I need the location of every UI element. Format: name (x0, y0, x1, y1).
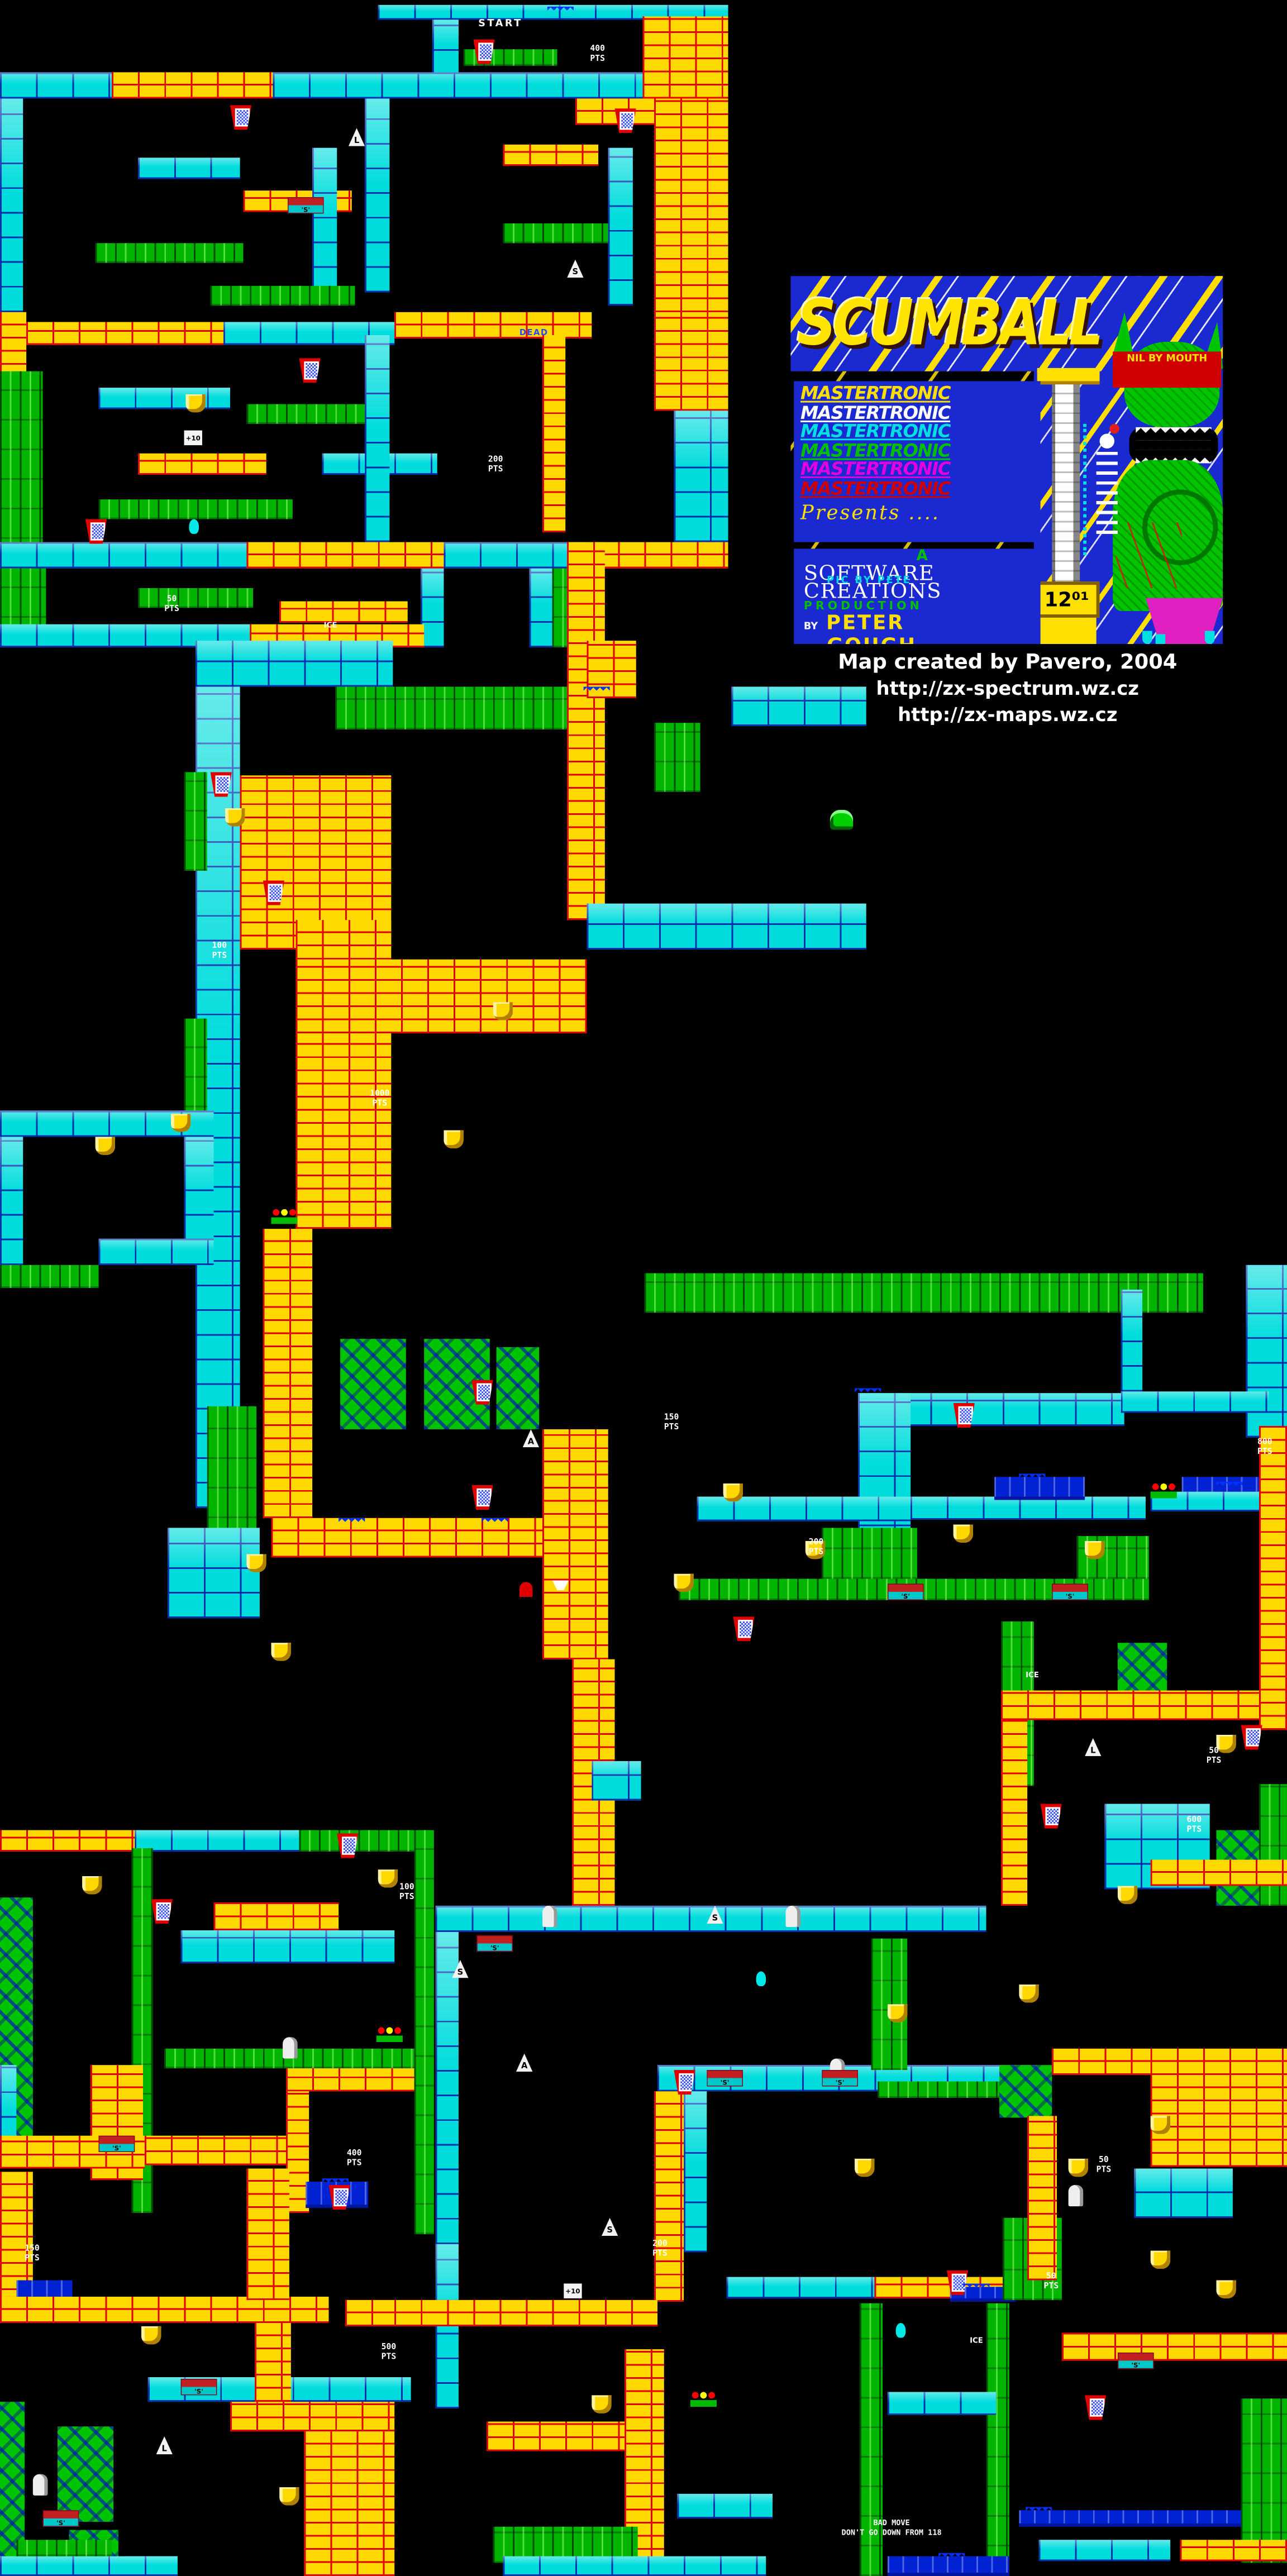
map-block-cyan-platform (421, 569, 444, 647)
map-block-cyan-platform (677, 2494, 773, 2518)
map-block-cyan-platform (0, 2556, 178, 2576)
map-block-brick-wall (246, 542, 444, 569)
sprite-cup-icon (1019, 1985, 1038, 2002)
sprite-flower-icon (1151, 1483, 1177, 1498)
sprite-cup-icon (674, 1574, 693, 1592)
map-block-brick-wall (1001, 1720, 1027, 1906)
map-block-cyan-platform (858, 1393, 911, 1551)
monster-claw-icon (1205, 631, 1215, 644)
sprite-wdecor-icon (322, 2178, 349, 2188)
sprite-kconv-icon: 'S' (99, 2136, 135, 2152)
map-block-cyan-platform (436, 1932, 459, 2244)
map-block-green-foliage (99, 499, 293, 519)
sprite-flame-icon (756, 1972, 766, 1986)
sprite-flame-icon (896, 2323, 906, 2338)
sprite-pyr-icon: S (567, 260, 583, 278)
pillar-shaft (1052, 384, 1080, 581)
map-block-brick-wall (214, 1902, 339, 1930)
map-block-cyan-platform (365, 98, 389, 292)
sprite-kconv-icon: 'S' (1052, 1583, 1088, 1600)
map-block-cyan-platform (99, 1239, 214, 1265)
game-map: LSSALSALS400 PTS100 PTS1000 PTS150 PTS20… (0, 0, 1287, 2576)
sprite-pyr-icon: L (349, 128, 365, 146)
sprite-wdecor-icon (963, 2283, 989, 2293)
sprite-kconv-icon: 'S' (822, 2070, 858, 2086)
sprite-cup-icon (1151, 2251, 1170, 2269)
sprite-pts-icon: 50 PTS (1043, 2274, 1059, 2292)
sprite-pts-icon: 1000 PTS (370, 1091, 389, 1109)
map-block-brick-wall (296, 920, 392, 960)
map-block-brick-wall (654, 312, 728, 411)
sprite-cup-icon (1085, 1541, 1104, 1559)
sprite-kconv-icon: 'S' (181, 2379, 217, 2395)
sprite-flower-icon (690, 2392, 717, 2407)
sprite-cup-icon (171, 1114, 190, 1132)
sprite-kconv-icon: 'S' (1118, 2353, 1154, 2369)
map-block-brick-wall (296, 960, 587, 1033)
map-block-brick-wall (542, 335, 565, 532)
sprite-pts-icon: 150 PTS (25, 2246, 40, 2264)
map-block-brick-wall (1151, 2049, 1287, 2167)
sprite-wdecor-icon (547, 7, 574, 17)
sprite-cup-icon (271, 1643, 291, 1661)
sprite-statue-icon (283, 2037, 297, 2058)
skeleton-ribs-icon (1097, 449, 1118, 534)
map-block-green-foliage (184, 772, 207, 870)
sprite-cup-icon (1151, 2116, 1170, 2134)
sprite-dead-icon: DEAD (519, 328, 549, 338)
sprite-hopper-icon (337, 1833, 358, 1858)
sprite-cup-icon (493, 1002, 513, 1020)
sprite-pts-icon: 600 PTS (1186, 1817, 1202, 1835)
sprite-hopper-icon (1041, 1804, 1062, 1829)
hopper-screen-icon (958, 1406, 973, 1424)
start-label: START (478, 18, 523, 30)
hopper-screen-icon (476, 1384, 491, 1401)
map-block-brick-wall (255, 2323, 291, 2402)
map-block-totem-pillar (340, 1339, 406, 1429)
sprite-wdecor-icon (584, 686, 610, 697)
monster-mouth-icon (1129, 427, 1218, 464)
map-block-cyan-platform (0, 542, 246, 569)
map-block-cyan-platform (99, 388, 230, 409)
sprite-cup-icon (279, 2487, 299, 2505)
map-block-cyan-platform (0, 98, 23, 312)
sprite-pts-icon: 50 PTS (164, 597, 179, 614)
sprite-cup-icon (592, 2395, 611, 2413)
credits-url-zx-maps: http://zx-maps.wz.cz (766, 702, 1249, 728)
warning-label: BAD MOVE DON'T GO DOWN FROM 118 (842, 2520, 942, 2539)
author-row: BY PETER (804, 613, 1041, 636)
sprite-pyr-icon: S (602, 2218, 618, 2236)
map-block-brick-wall (345, 2300, 394, 2326)
hopper-screen-icon (215, 775, 230, 793)
sprite-wdecor-icon (482, 1518, 508, 1528)
title-screen-inset: 12⁰¹ NIL BY MOUTH SCUMBALL MASTERTRONICM… (790, 276, 1223, 644)
hopper-screen-icon (679, 2073, 693, 2091)
map-block-cyan-platform (684, 2091, 707, 2252)
map-block-brick-wall (112, 72, 273, 98)
sprite-cup-icon (1069, 2159, 1088, 2177)
sprite-hopper-icon (230, 105, 251, 130)
author-name-line1: PETER (826, 611, 904, 634)
sprite-cup-icon (954, 1525, 973, 1543)
map-block-cyan-platform (273, 72, 417, 98)
hopper-screen-icon (90, 522, 105, 540)
map-block-green-foliage (822, 1528, 917, 1578)
sprite-hopper-icon (733, 1616, 754, 1641)
map-block-green-foliage (96, 243, 244, 263)
map-block-totem-pillar (497, 1347, 540, 1429)
sprite-statue-icon (33, 2474, 47, 2496)
map-block-brick-wall (394, 2300, 657, 2326)
credits-url-zx-spectrum: http://zx-spectrum.wz.cz (766, 675, 1249, 702)
map-block-brick-wall (1001, 1691, 1259, 1720)
map-block-brick-wall (1180, 2540, 1287, 2561)
map-block-water (1019, 2510, 1259, 2526)
sprite-cup-icon (444, 1130, 463, 1148)
map-block-cyan-platform (592, 1761, 641, 1801)
sprite-cup-icon (186, 394, 206, 412)
map-block-brick-wall (542, 1429, 608, 1659)
sprite-kconv-icon: 'S' (476, 1935, 513, 1952)
sprite-wdecor-icon (339, 1518, 365, 1528)
sprite-wdecor-icon (1026, 2507, 1052, 2517)
monster-claw-icon (1156, 634, 1166, 644)
map-block-brick-wall (643, 16, 728, 98)
map-block-cyan-platform (196, 641, 393, 686)
map-block-cyan-platform (181, 1930, 395, 1963)
sprite-pts-icon: 200 PTS (809, 1539, 824, 1557)
publisher-line: MASTERTRONIC (800, 479, 1041, 498)
map-block-green-foliage (878, 2082, 1006, 2098)
sprite-cup-icon (225, 808, 245, 826)
sprite-statue-icon (1069, 2185, 1083, 2206)
map-block-brick-wall (304, 2431, 394, 2576)
hopper-screen-icon (478, 42, 493, 60)
hopper-screen-icon (1090, 2398, 1104, 2416)
sprite-kconv-icon: 'S' (43, 2510, 79, 2526)
map-block-green-foliage (0, 1265, 99, 1288)
map-block-brick-wall (1151, 1860, 1287, 1886)
hopper-screen-icon (738, 1620, 752, 1638)
pillar-base: 12⁰¹ (1034, 581, 1100, 618)
map-block-cyan-platform (1121, 1391, 1269, 1413)
map-block-green-foliage (654, 723, 700, 792)
map-block-brick-wall (26, 322, 223, 345)
production-panel: A SOFTWARE CREATIONS PRODUCTION BY PETER… (794, 548, 1040, 644)
map-block-brick-wall (1062, 2333, 1287, 2361)
map-block-green-foliage (335, 686, 585, 729)
sprite-batt-icon: +10 (184, 431, 202, 445)
author-row: GOUGH (804, 636, 1041, 644)
map-block-brick-wall (1052, 2049, 1153, 2075)
sprite-flame-icon (189, 519, 199, 533)
by-label: BY (804, 621, 818, 633)
map-block-cyan-platform (365, 335, 389, 542)
sprite-pts-icon: 200 PTS (488, 457, 503, 475)
sprite-pyr-icon: L (156, 2436, 173, 2454)
publisher-lines: MASTERTRONICMASTERTRONICMASTERTRONICMAST… (800, 384, 1041, 498)
skeleton-skull-icon (1100, 434, 1114, 449)
map-block-green-foliage (1241, 2398, 1287, 2563)
sprite-wdecor-icon (855, 1388, 881, 1398)
sprite-pyr-icon: A (523, 1429, 539, 1447)
map-block-green-foliage (246, 404, 375, 424)
monster-teeth-icon (1136, 427, 1211, 441)
game-logo: SCUMBALL (797, 286, 1218, 360)
map-block-brick-wall (230, 2402, 394, 2431)
map-block-green-foliage (16, 2540, 112, 2556)
map-block-totem-pillar (999, 2065, 1052, 2117)
map-block-cyan-platform (587, 904, 866, 950)
sprite-pts-icon: 400 PTS (590, 46, 605, 64)
chain-icon (1083, 424, 1086, 555)
publisher-line: MASTERTRONIC (800, 441, 1041, 460)
sprite-cup-icon (723, 1483, 743, 1501)
map-block-cyan-platform (0, 1137, 23, 1265)
map-block-brick-wall (279, 602, 408, 623)
map-block-brick-wall (567, 542, 605, 920)
map-block-brick-wall (263, 1229, 312, 1518)
map-credits: Map created by Pavero, 2004 http://zx-sp… (766, 647, 1249, 728)
map-block-green-foliage (644, 1273, 1203, 1313)
sprite-pts-icon: 200 PTS (652, 2241, 668, 2259)
hopper-screen-icon (156, 1902, 171, 1920)
hopper-screen-icon (333, 2188, 348, 2206)
sprite-cup-icon (1118, 1886, 1137, 1904)
map-block-cyan-platform (503, 2556, 766, 2576)
map-block-green-foliage (0, 371, 43, 569)
sprite-kconv-icon: 'S' (288, 197, 324, 213)
publisher-line: MASTERTRONIC (800, 403, 1041, 422)
map-block-brick-wall (654, 98, 728, 312)
sprite-hopper-icon (85, 519, 107, 543)
sprite-hopper-icon (1241, 1725, 1262, 1749)
presents-text: Presents .... (800, 501, 1041, 524)
map-block-brick-wall (1027, 2116, 1057, 2280)
map-block-cyan-platform (674, 411, 728, 542)
map-block-green-foliage (503, 223, 614, 243)
sprite-hopper-icon (471, 1485, 493, 1510)
map-block-cyan-platform (0, 72, 112, 98)
map-block-green-foliage (986, 2303, 1009, 2576)
monster-claw-icon (1142, 631, 1152, 644)
map-block-brick-wall (0, 1830, 135, 1852)
sprite-pts-icon: 50 PTS (1097, 2157, 1112, 2175)
map-block-brick-wall (592, 542, 728, 569)
map-block-brick-wall (1259, 1426, 1287, 1730)
monster-veins-icon (1116, 522, 1182, 588)
sprite-pts-icon: 800 PTS (1257, 1439, 1272, 1457)
pillar-capital (1037, 368, 1100, 384)
map-block-cyan-platform (417, 72, 642, 98)
sprite-pts-icon: 50 PTS (1207, 1748, 1222, 1766)
sprite-pts-icon: 100 PTS (212, 943, 227, 961)
hopper-screen-icon (1045, 1807, 1060, 1825)
map-block-cyan-platform (138, 158, 240, 179)
map-block-cyan-platform (1121, 1290, 1142, 1391)
credits-author-line: Map created by Pavero, 2004 (766, 647, 1249, 675)
map-block-brick-wall (654, 2091, 684, 2301)
sprite-ice-icon: ICE (324, 624, 337, 633)
map-block-cyan-platform (727, 2277, 875, 2298)
map-block-brick-wall (0, 2297, 329, 2323)
sprite-hopper-icon (299, 358, 321, 383)
sprite-wdecor-icon (938, 2553, 965, 2563)
sprite-frog-icon (830, 810, 853, 829)
sprite-cup-icon (96, 1137, 115, 1155)
map-block-green-foliage (211, 286, 355, 306)
hopper-screen-icon (1246, 1728, 1260, 1746)
sprite-flower-icon (271, 1209, 298, 1224)
skeleton-red-blob-icon (1109, 424, 1119, 434)
map-block-brick-wall (246, 2169, 289, 2300)
sprite-cup-icon (1216, 2281, 1236, 2298)
sprite-wdecor-icon (1019, 1473, 1045, 1483)
hopper-screen-icon (476, 1489, 491, 1506)
map-block-cyan-platform (911, 1497, 1146, 1520)
sprite-cup-icon (82, 1876, 102, 1894)
sprite-cup-icon (888, 2004, 907, 2022)
sprite-cup-icon (855, 2159, 874, 2177)
hopper-screen-icon (235, 108, 250, 126)
hopper-screen-icon (268, 884, 283, 901)
sprite-batt-icon: +10 (564, 2283, 581, 2298)
sprite-cup-icon (246, 1554, 266, 1572)
sprite-pts-icon: 150 PTS (664, 1414, 679, 1432)
hopper-screen-icon (304, 361, 318, 379)
publisher-line: MASTERTRONIC (800, 422, 1041, 441)
map-block-cyan-platform (312, 148, 337, 293)
pic-credit: PIC BY PETE (827, 575, 912, 586)
map-block-brick-wall (394, 312, 592, 338)
map-block-green-foliage (414, 1830, 434, 2235)
sprite-wdecor-icon (1216, 1482, 1242, 1492)
map-block-brick-wall (138, 454, 266, 475)
map-block-cyan-platform (529, 569, 552, 647)
hopper-screen-icon (619, 112, 634, 130)
sprite-pts-icon: 400 PTS (347, 2150, 362, 2168)
sprite-ice-icon: ICE (970, 2339, 983, 2348)
map-block-cyan-platform (888, 2392, 996, 2415)
sprite-flower-icon (376, 2028, 403, 2042)
sprite-pts-icon: 500 PTS (382, 2344, 397, 2362)
map-block-cyan-platform (168, 1528, 260, 1618)
publisher-line: MASTERTRONIC (800, 384, 1041, 403)
map-block-brick-wall (296, 1033, 392, 1229)
sprite-cup-icon (378, 1869, 398, 1887)
sprite-hopper-icon (614, 108, 636, 133)
publisher-panel: MASTERTRONICMASTERTRONICMASTERTRONICMAST… (794, 381, 1040, 542)
hopper-screen-icon (342, 1836, 356, 1854)
sprite-pyr-icon: A (516, 2054, 532, 2072)
map-block-brick-wall (145, 2136, 286, 2165)
sprite-kconv-icon: 'S' (707, 2070, 743, 2086)
sprite-statue-icon (542, 1906, 557, 1927)
map-block-green-foliage (1259, 1784, 1287, 1906)
map-block-green-foliage (138, 588, 253, 608)
sprite-hopper-icon (151, 1899, 173, 1924)
pillar-foot (1037, 618, 1097, 644)
map-block-cyan-platform (135, 1830, 299, 1852)
map-block-cyan-platform (432, 20, 459, 75)
sprite-cup-icon (141, 2326, 161, 2344)
map-block-cyan-platform (1134, 2169, 1233, 2218)
sprite-hopper-icon (1085, 2395, 1106, 2420)
sprite-bell-icon (519, 1582, 533, 1596)
map-block-brick-wall (286, 2068, 431, 2091)
map-block-totem-pillar (58, 2426, 113, 2522)
sprite-kconv-icon: 'S' (888, 1583, 924, 1600)
map-block-cyan-platform (608, 148, 633, 306)
sprite-pts-icon: 100 PTS (399, 1885, 414, 1902)
author-name-line2: GOUGH (827, 634, 917, 644)
map-block-brick-wall (503, 145, 598, 166)
map-block-cyan-platform (1039, 2540, 1170, 2561)
scumball-map-page: { "page": { "title": "Scumball — ZX Spec… (0, 0, 1287, 2576)
sprite-pyr-icon: L (1085, 1738, 1101, 1756)
map-block-brick-wall (487, 2421, 625, 2451)
sprite-ice-icon: ICE (1026, 1674, 1039, 1682)
publisher-line: MASTERTRONIC (800, 460, 1041, 479)
sprite-statue-icon (786, 1906, 800, 1927)
